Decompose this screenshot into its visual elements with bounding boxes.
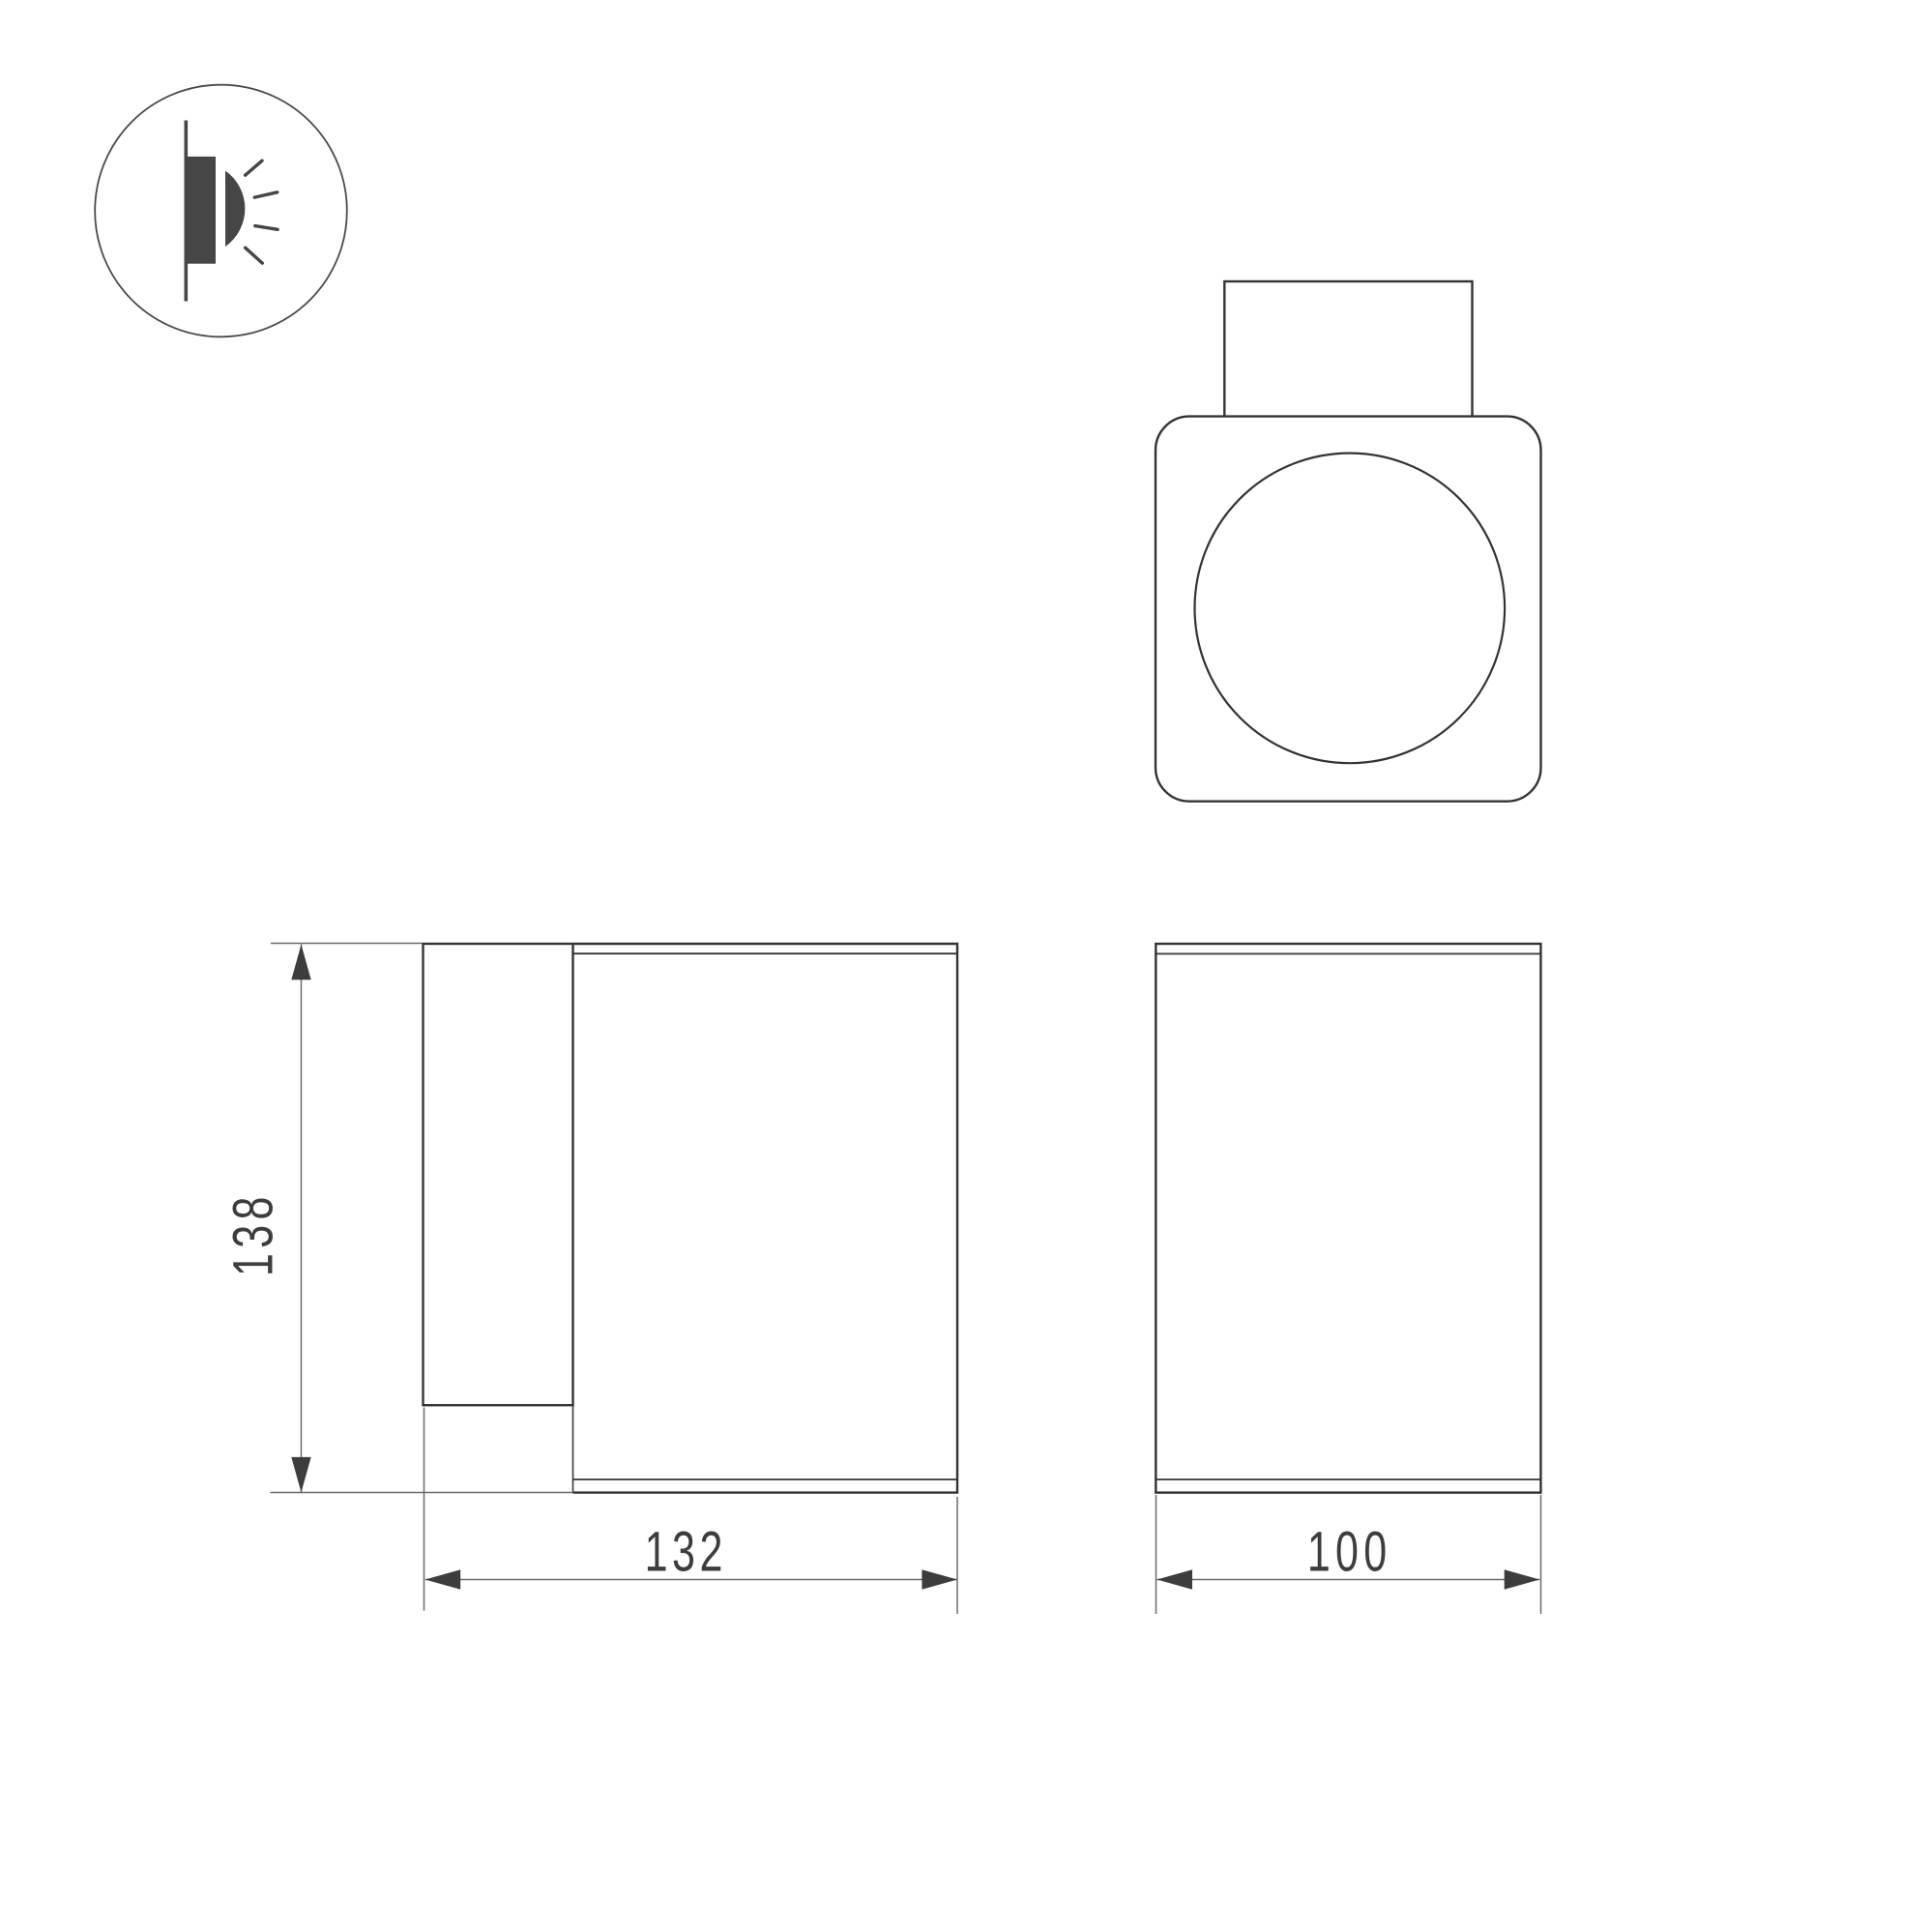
svg-text:3: 3 (672, 1520, 695, 1583)
svg-text:2: 2 (700, 1520, 723, 1583)
svg-text:0: 0 (1335, 1520, 1359, 1583)
svg-text:8: 8 (221, 1197, 284, 1220)
svg-text:3: 3 (221, 1225, 284, 1248)
svg-text:0: 0 (1363, 1520, 1387, 1583)
svg-text:1: 1 (1307, 1520, 1331, 1583)
svg-text:1: 1 (221, 1253, 284, 1276)
svg-text:1: 1 (645, 1520, 668, 1583)
